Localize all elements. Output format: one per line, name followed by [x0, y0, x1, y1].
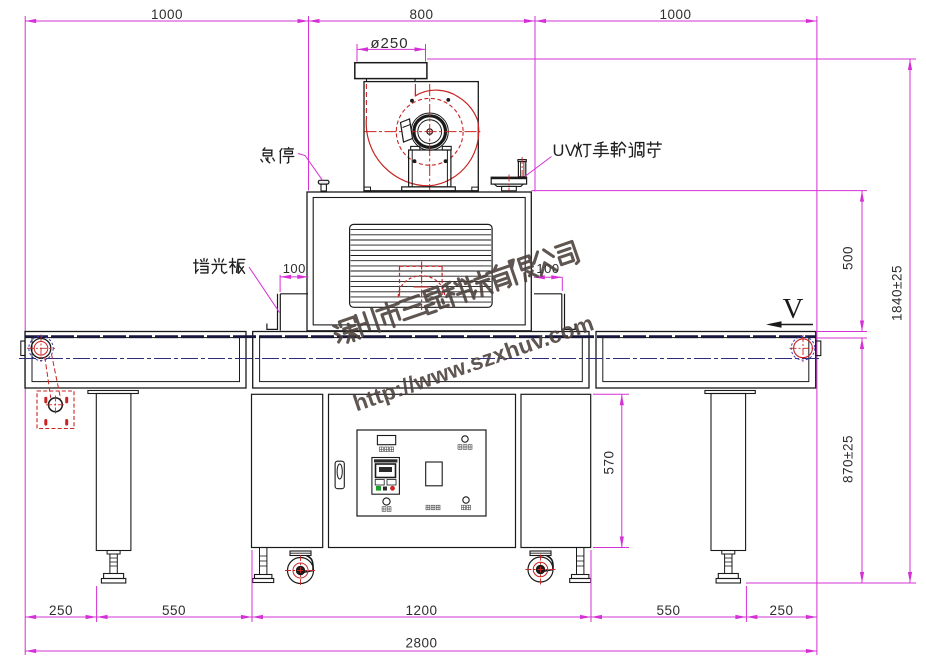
svg-text:1840±25: 1840±25	[890, 265, 905, 321]
svg-text:1000: 1000	[659, 7, 691, 22]
svg-text:870±25: 870±25	[841, 435, 856, 483]
svg-text:UV: UV	[553, 142, 577, 160]
svg-text:ø250: ø250	[370, 35, 408, 52]
svg-text:250: 250	[49, 603, 73, 618]
svg-text:2800: 2800	[405, 636, 437, 651]
svg-text:550: 550	[656, 603, 680, 618]
svg-text:V: V	[783, 293, 804, 325]
svg-text:800: 800	[409, 7, 433, 22]
svg-text:570: 570	[602, 450, 617, 474]
svg-text:1000: 1000	[151, 7, 183, 22]
svg-text:550: 550	[162, 603, 186, 618]
svg-text:500: 500	[841, 246, 856, 270]
svg-text:250: 250	[769, 603, 793, 618]
svg-text:1200: 1200	[405, 603, 437, 618]
svg-text:100: 100	[283, 261, 306, 276]
svg-text:100: 100	[536, 261, 559, 276]
